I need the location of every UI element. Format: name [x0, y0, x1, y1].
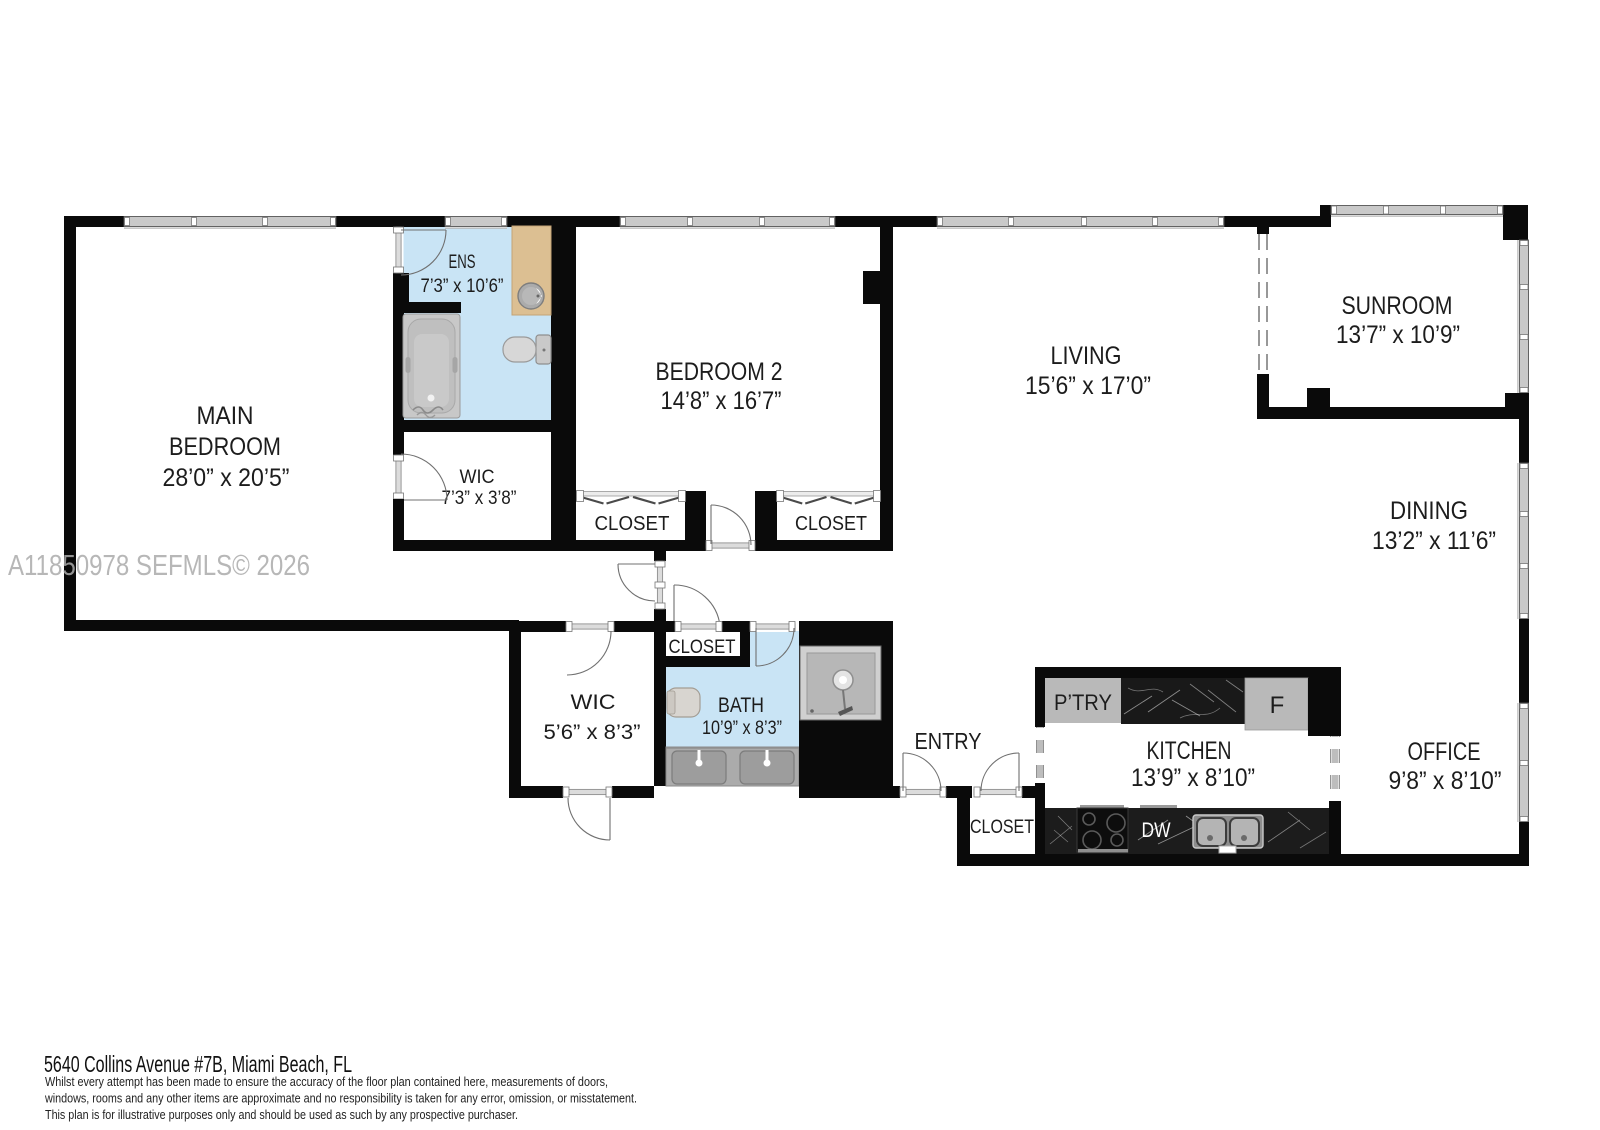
svg-text:13’2” x 11’6”: 13’2” x 11’6” — [1372, 527, 1496, 555]
svg-text:CLOSET: CLOSET — [595, 513, 670, 535]
svg-text:This plan is for illustrative: This plan is for illustrative purposes o… — [45, 1107, 518, 1122]
svg-text:BATH: BATH — [718, 694, 764, 717]
svg-text:13’9” x 8’10”: 13’9” x 8’10” — [1131, 764, 1255, 792]
svg-text:DW: DW — [1142, 819, 1171, 842]
svg-text:5’6” x 8’3”: 5’6” x 8’3” — [544, 721, 641, 744]
svg-text:28’0” x 20’5”: 28’0” x 20’5” — [163, 464, 290, 492]
svg-text:BEDROOM 2: BEDROOM 2 — [656, 358, 783, 386]
svg-text:MAIN: MAIN — [197, 402, 254, 430]
svg-text:windows, rooms and any other i: windows, rooms and any other items are a… — [44, 1091, 637, 1106]
svg-text:P’TRY: P’TRY — [1054, 690, 1112, 715]
svg-text:10’9” x 8’3”: 10’9” x 8’3” — [702, 718, 782, 739]
svg-text:ENTRY: ENTRY — [915, 728, 982, 754]
svg-text:SUNROOM: SUNROOM — [1342, 292, 1453, 320]
svg-text:KITCHEN: KITCHEN — [1147, 737, 1232, 765]
svg-text:A11850978 SEFMLS© 2026: A11850978 SEFMLS© 2026 — [8, 550, 310, 582]
svg-text:7’3” x 10’6”: 7’3” x 10’6” — [421, 276, 504, 297]
svg-text:13’7” x 10’9”: 13’7” x 10’9” — [1336, 321, 1460, 349]
svg-text:WIC: WIC — [460, 467, 495, 488]
svg-text:9’8” x 8’10”: 9’8” x 8’10” — [1389, 767, 1502, 795]
svg-text:Whilst every attempt has been: Whilst every attempt has been made to en… — [45, 1074, 608, 1089]
svg-text:OFFICE: OFFICE — [1408, 738, 1481, 766]
svg-text:ENS: ENS — [449, 252, 476, 273]
svg-text:WIC: WIC — [571, 691, 616, 714]
svg-text:7’3” x 3’8”: 7’3” x 3’8” — [442, 488, 517, 509]
svg-text:CLOSET: CLOSET — [669, 637, 736, 658]
svg-text:15’6” x 17’0”: 15’6” x 17’0” — [1025, 372, 1151, 400]
svg-text:BEDROOM: BEDROOM — [169, 433, 281, 461]
svg-text:CLOSET: CLOSET — [970, 817, 1034, 838]
svg-text:F: F — [1270, 692, 1285, 719]
svg-text:DINING: DINING — [1390, 497, 1468, 525]
svg-text:LIVING: LIVING — [1051, 342, 1122, 370]
svg-text:14’8” x 16’7”: 14’8” x 16’7” — [661, 387, 782, 415]
svg-text:CLOSET: CLOSET — [795, 513, 867, 535]
